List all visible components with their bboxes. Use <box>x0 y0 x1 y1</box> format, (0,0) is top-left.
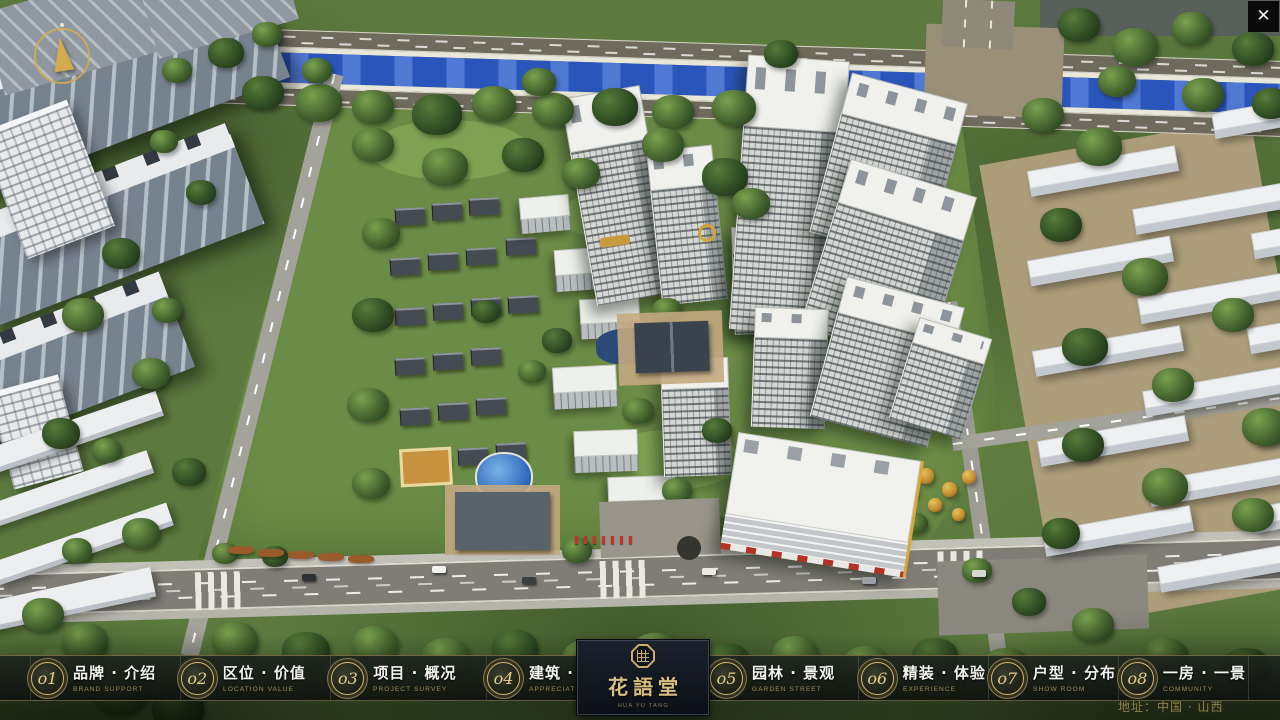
tree-cluster <box>1012 588 1046 616</box>
courtyard-house <box>395 307 426 326</box>
tree-cluster <box>1022 98 1064 132</box>
tree-cluster <box>102 238 140 269</box>
car <box>302 574 316 581</box>
golden-tree <box>942 482 957 497</box>
close-icon: ✕ <box>1256 6 1270 26</box>
tree-cluster <box>1058 8 1100 42</box>
tree-cluster <box>302 58 332 83</box>
tree-cluster <box>1042 518 1080 549</box>
red-flag <box>575 536 578 544</box>
tree-cluster <box>472 86 516 122</box>
tree-cluster <box>412 94 462 135</box>
tree-cluster <box>1172 12 1212 45</box>
car <box>522 577 536 584</box>
tree-cluster <box>62 538 92 563</box>
courtyard-house <box>469 197 500 216</box>
tree-cluster <box>652 95 694 129</box>
compass-needle-icon <box>50 36 75 72</box>
nav-label-zh: 一房 · 一景 <box>1163 662 1246 683</box>
tree-cluster <box>122 518 160 549</box>
nav-label-en: BRAND SUPPORT <box>73 685 143 692</box>
tree-cluster <box>1152 368 1194 402</box>
courtyard-house <box>433 352 464 371</box>
tree-cluster <box>362 218 400 249</box>
courtyard-house <box>390 257 421 276</box>
tree-cluster <box>522 68 556 96</box>
tree-cluster <box>1232 32 1274 66</box>
close-button[interactable]: ✕ <box>1248 1 1279 32</box>
red-flag <box>611 536 614 544</box>
gold-arch <box>698 224 716 242</box>
amenity-building <box>399 447 453 488</box>
tree-cluster <box>352 90 394 124</box>
shrub-row <box>318 553 344 561</box>
nav-number-badge: o6 <box>861 662 894 695</box>
nav-item-landscape[interactable]: o5 园林 · 景观 GARDEN STREET <box>710 656 859 700</box>
tree-cluster <box>1252 88 1280 119</box>
tree-cluster <box>252 22 282 47</box>
nav-item-one-room-one-view[interactable]: o8 一房 · 一景 COMMUNITY <box>1119 656 1249 700</box>
nav-label-en: EXPERIENCE <box>903 685 956 692</box>
north-cross-road <box>941 0 1015 50</box>
shrub-row <box>288 551 314 559</box>
red-flag <box>584 536 587 544</box>
midrise-building <box>519 194 572 234</box>
tree-cluster <box>592 88 638 126</box>
tree-cluster <box>352 298 394 332</box>
courtyard-house <box>466 247 497 266</box>
nav-item-interior-experience[interactable]: o6 精装 · 体验 EXPERIENCE <box>859 656 989 700</box>
nav-number-badge: o1 <box>31 662 64 695</box>
red-flag <box>620 536 623 544</box>
tree-cluster <box>62 298 104 332</box>
golden-tree <box>928 498 942 512</box>
project-logo[interactable]: 花語堂 HUA YU TANG <box>577 640 709 715</box>
courtyard-house <box>395 207 426 226</box>
car <box>972 570 986 577</box>
tree-cluster <box>422 148 468 186</box>
nav-label-zh: 户型 · 分布 <box>1033 662 1116 683</box>
shrub-row <box>258 549 284 557</box>
red-flag <box>629 536 632 544</box>
nav-number-badge: o5 <box>710 662 743 695</box>
tree-cluster <box>1076 128 1122 166</box>
midrise-building <box>573 429 638 473</box>
golden-tree <box>952 508 965 521</box>
courtyard-house <box>428 252 459 271</box>
tree-cluster <box>764 40 798 68</box>
tree-cluster <box>1062 328 1108 366</box>
tree-cluster <box>352 128 394 162</box>
golden-tree <box>962 470 976 484</box>
courtyard-house <box>395 357 426 376</box>
crosswalk <box>195 571 244 610</box>
project-name: 花語堂 <box>603 671 683 700</box>
car <box>702 568 716 575</box>
nav-label-zh: 园林 · 景观 <box>752 662 835 683</box>
nav-label-en: COMMUNITY <box>1163 685 1213 692</box>
car <box>862 577 876 584</box>
tree-cluster <box>472 300 500 323</box>
tree-cluster <box>562 158 600 189</box>
tree-cluster <box>1232 498 1274 532</box>
car <box>432 566 446 573</box>
seal-icon <box>631 644 655 668</box>
nav-label-en: GARDEN STREET <box>752 685 822 692</box>
tree-cluster <box>1098 66 1136 97</box>
red-flag <box>593 536 596 544</box>
tree-cluster <box>352 468 390 499</box>
tree-cluster <box>532 93 574 127</box>
tree-cluster <box>1040 208 1082 242</box>
courtyard-house <box>506 237 537 256</box>
tree-cluster <box>296 84 342 122</box>
courtyard-house <box>476 397 507 416</box>
tree-cluster <box>642 128 684 162</box>
tree-cluster <box>22 598 64 632</box>
red-flag <box>602 536 605 544</box>
nav-group-right: o5 园林 · 景观 GARDEN STREET o6 精装 · 体验 EXPE… <box>709 656 1249 700</box>
nav-number-badge: o7 <box>991 662 1024 695</box>
entrance-roundabout <box>677 536 701 560</box>
nav-item-project-overview[interactable]: o3 项目 · 概况 PROJECT SURVEY <box>331 656 487 700</box>
nav-label-zh: 精装 · 体验 <box>903 662 986 683</box>
tree-cluster <box>150 130 178 153</box>
gatehouse-roof <box>455 492 550 550</box>
tree-cluster <box>242 76 284 110</box>
compass-icon <box>34 28 90 84</box>
nav-item-brand-intro[interactable]: o1 品牌 · 介绍 BRAND SUPPORT <box>31 656 181 700</box>
courtyard-house <box>471 347 502 366</box>
tree-cluster <box>712 90 756 126</box>
nav-label-zh: 项目 · 概况 <box>373 662 456 683</box>
tree-cluster <box>347 388 389 422</box>
tree-cluster <box>1112 28 1158 66</box>
courtyard-house <box>432 202 463 221</box>
nav-item-floorplans[interactable]: o7 户型 · 分布 SHOW ROOM <box>989 656 1119 700</box>
tree-cluster <box>132 358 170 389</box>
tree-cluster <box>162 58 192 83</box>
shrub-row <box>348 555 374 563</box>
tree-cluster <box>152 298 182 323</box>
tree-cluster <box>1242 408 1280 446</box>
tree-cluster <box>502 138 544 172</box>
project-name-latin: HUA YU TANG <box>617 702 668 708</box>
tree-cluster <box>1142 468 1188 506</box>
tree-cluster <box>518 360 546 383</box>
tree-cluster <box>1072 608 1114 642</box>
nav-label-en: PROJECT SURVEY <box>373 685 447 692</box>
midrise-building <box>552 364 618 409</box>
courtyard-house <box>400 407 431 426</box>
nav-group-left: o1 品牌 · 介绍 BRAND SUPPORT o2 区位 · 价值 LOCA… <box>30 656 578 700</box>
nav-label-zh: 区位 · 价值 <box>223 662 306 683</box>
tree-cluster <box>1062 428 1104 462</box>
tree-cluster <box>92 438 122 463</box>
entrance-plaza <box>599 498 721 558</box>
sales-presentation-app: ✕ o1 品牌 · 介绍 BRAND SUPPORT o2 区位 · 价值 LO… <box>0 0 1280 720</box>
crosswalk <box>600 560 649 599</box>
tree-cluster <box>702 418 732 443</box>
tree-cluster <box>1212 298 1254 332</box>
nav-number-badge: o2 <box>181 662 214 695</box>
nav-label-en: SHOW ROOM <box>1033 685 1085 692</box>
nav-number-badge: o4 <box>487 662 520 695</box>
courtyard-house <box>433 302 464 321</box>
courtyard-house <box>438 402 469 421</box>
nav-label-en: LOCATION VALUE <box>223 685 294 692</box>
nav-number-badge: o8 <box>1121 662 1154 695</box>
tree-cluster <box>1182 78 1224 112</box>
tree-cluster <box>172 458 206 486</box>
nav-number-badge: o3 <box>331 662 364 695</box>
nav-item-location-value[interactable]: o2 区位 · 价值 LOCATION VALUE <box>181 656 332 700</box>
tree-cluster <box>1122 258 1168 296</box>
courtyard-house <box>508 295 539 314</box>
tree-cluster <box>542 328 572 353</box>
shrub-row <box>228 546 254 554</box>
masterplan-render <box>0 0 1280 720</box>
tree-cluster <box>186 180 216 205</box>
address-text: 地址：中国 · 山西 <box>1118 698 1223 715</box>
tree-cluster <box>208 38 244 68</box>
clubhouse-roof <box>634 321 710 374</box>
tree-cluster <box>42 418 80 449</box>
tree-cluster <box>622 398 654 424</box>
tree-cluster <box>732 188 770 219</box>
nav-label-zh: 品牌 · 介绍 <box>73 662 156 683</box>
